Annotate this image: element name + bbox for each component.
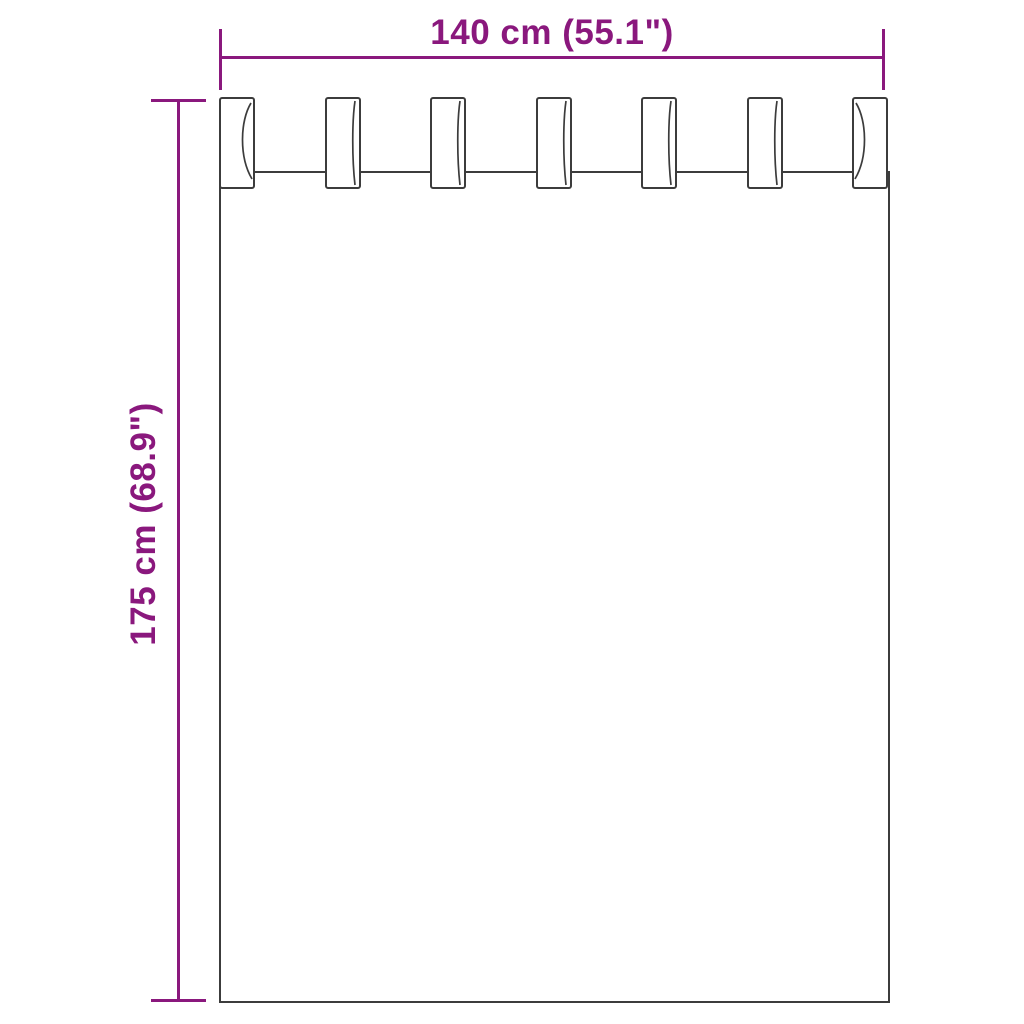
height-dimension-bottom-tick <box>151 999 206 1002</box>
width-dimension-right-tick <box>882 29 885 90</box>
height-dimension-line <box>177 100 180 1001</box>
width-dimension-label: 140 cm (55.1") <box>430 13 673 53</box>
curtain-panel <box>219 171 890 1003</box>
diagram-canvas: 140 cm (55.1") 175 cm (68.9") <box>0 0 1024 1024</box>
height-dimension-label: 175 cm (68.9") <box>124 402 164 645</box>
width-dimension-line <box>220 56 884 59</box>
width-dimension-left-tick <box>219 29 222 90</box>
height-dimension-top-tick <box>151 99 206 102</box>
